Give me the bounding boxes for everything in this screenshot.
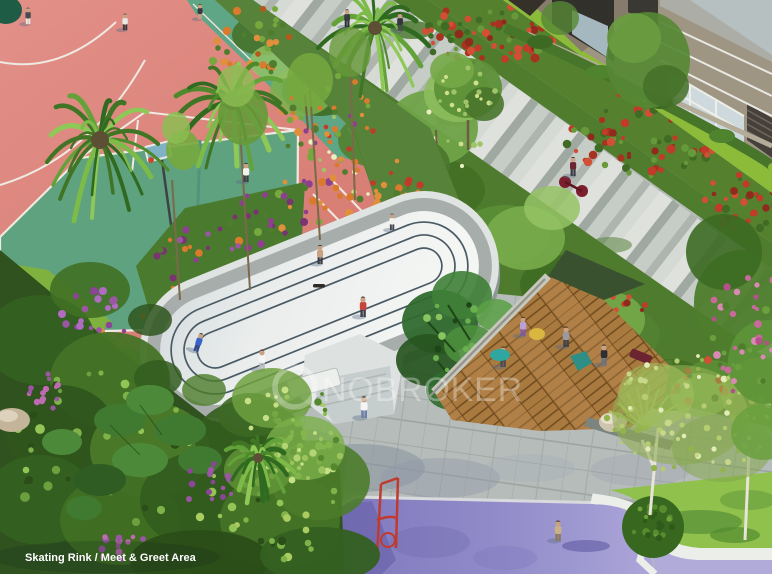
svg-text:NOBROKER: NOBROKER: [322, 371, 523, 409]
svg-text:Skating Rink / Meet & Greet Ar: Skating Rink / Meet & Greet Area: [25, 552, 197, 564]
